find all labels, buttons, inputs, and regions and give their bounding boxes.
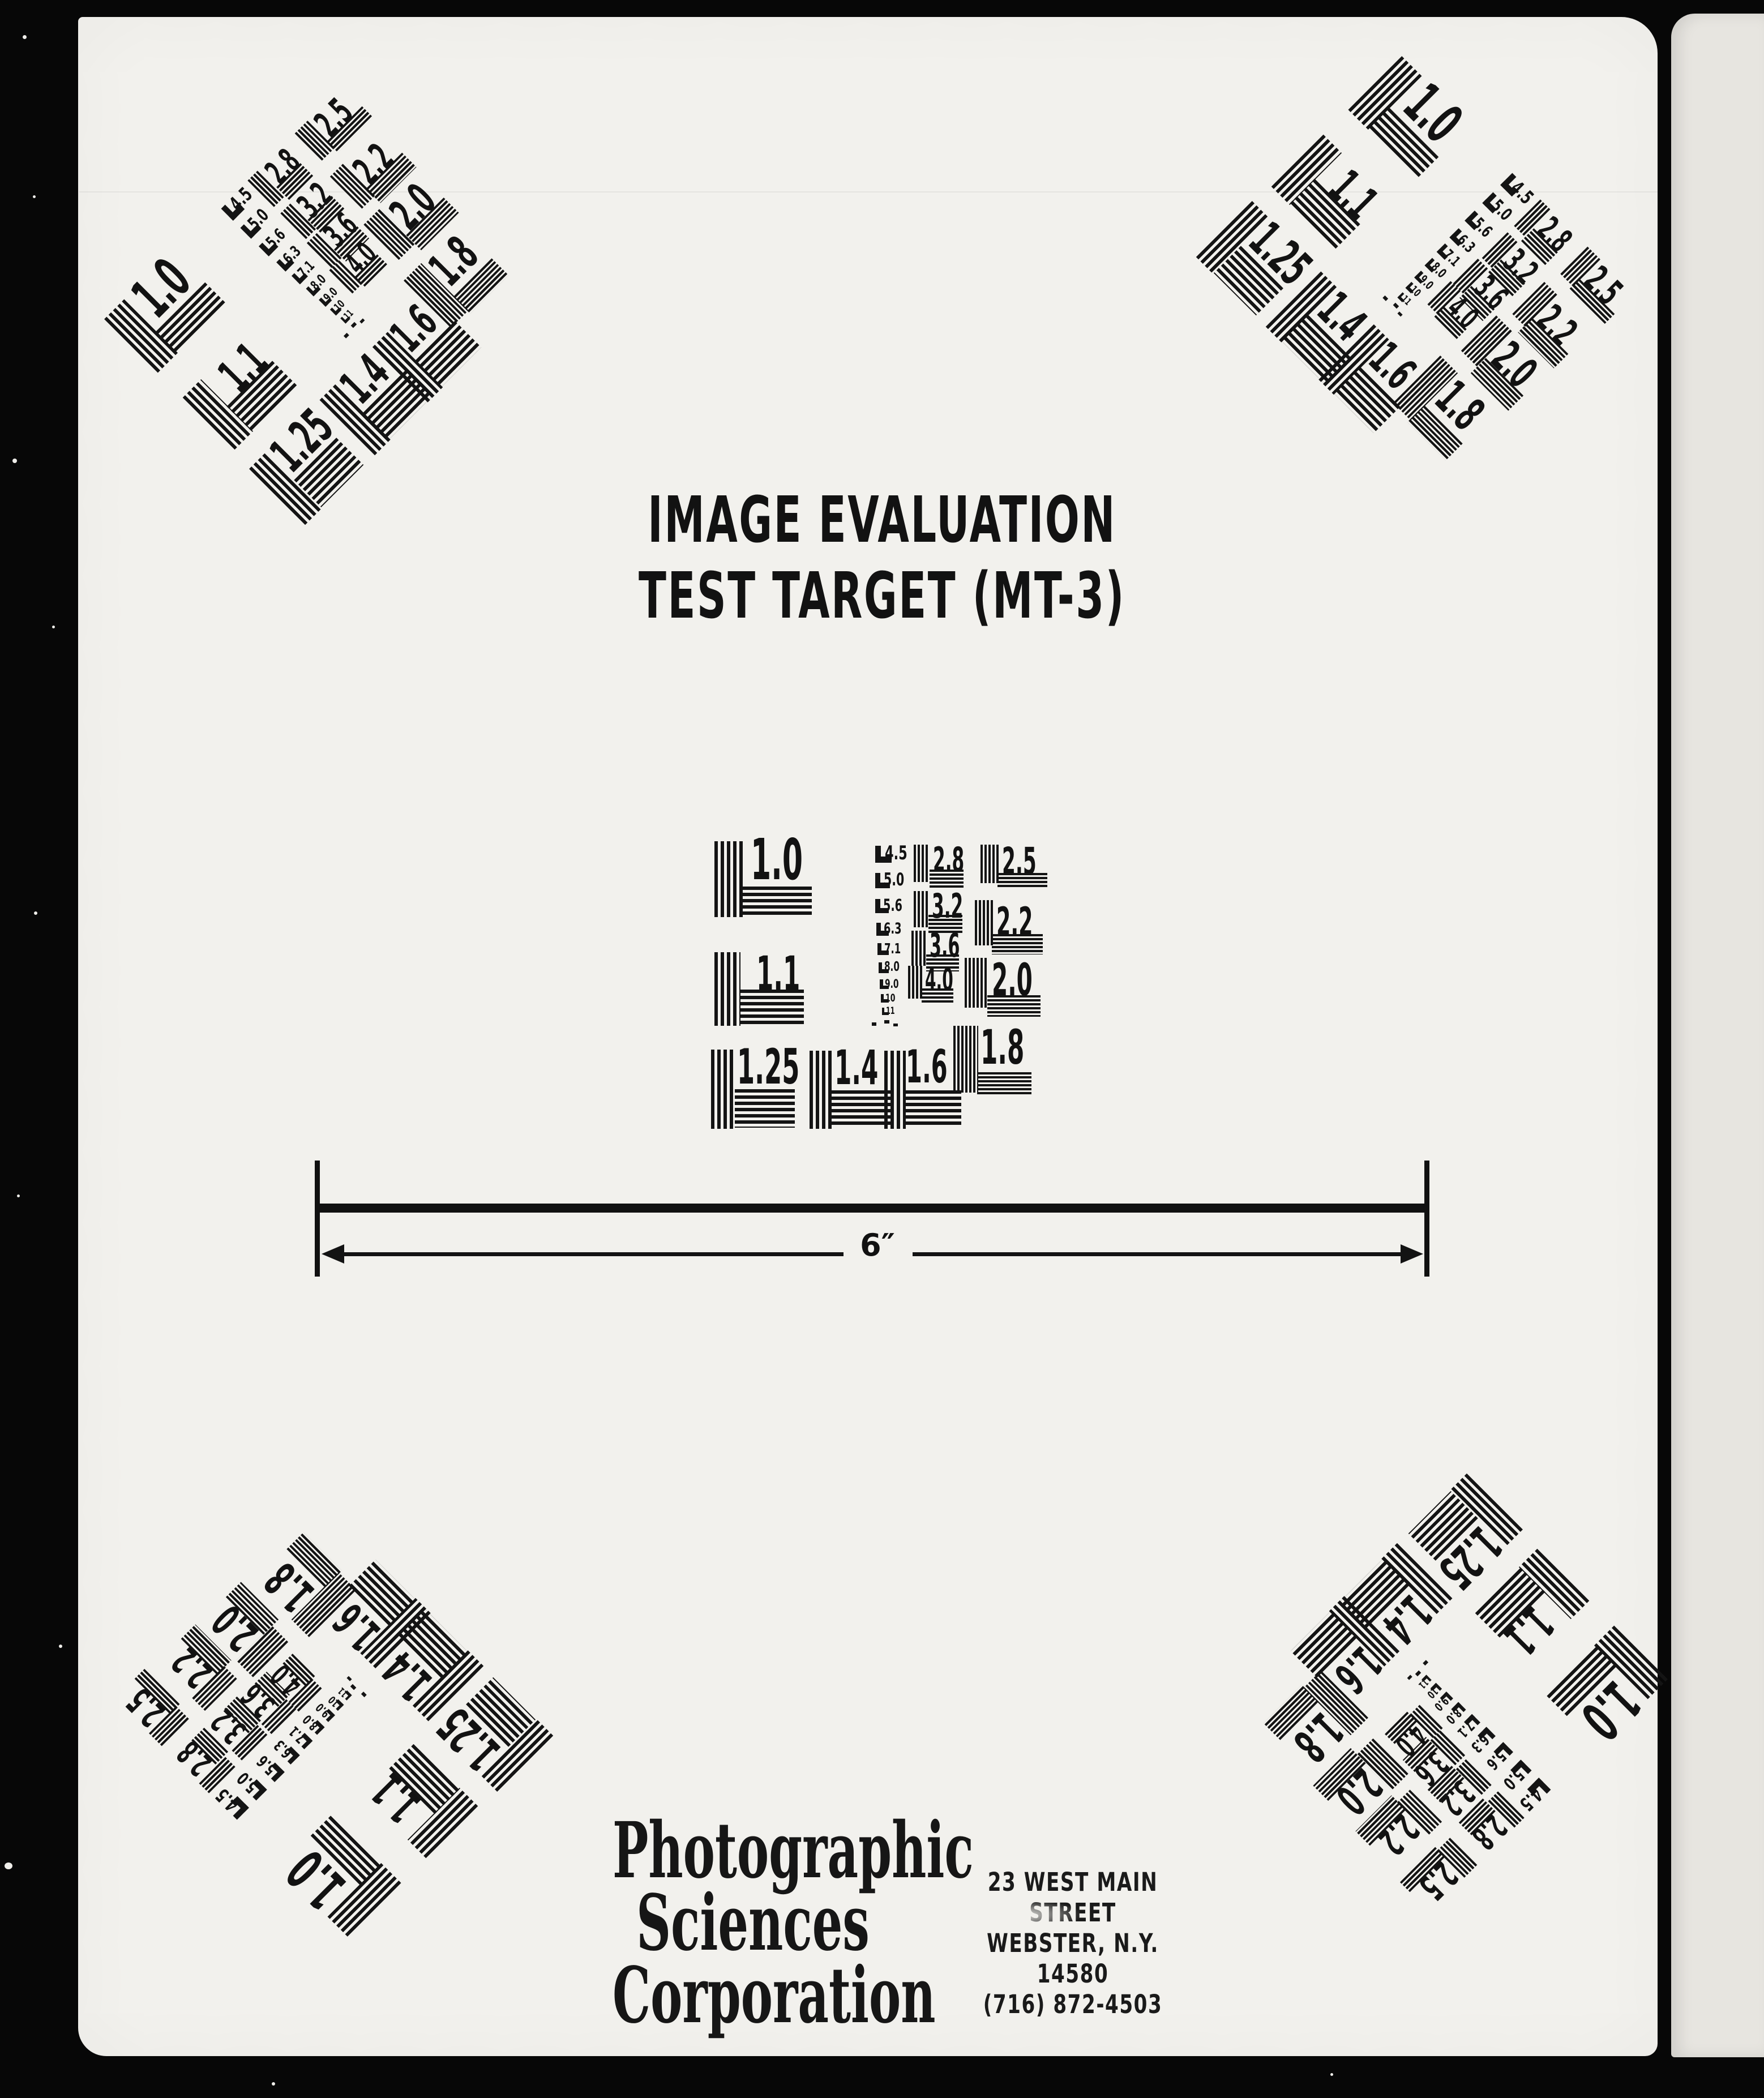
title-line-2: TEST TARGET (MT-3) xyxy=(318,558,1446,634)
company-line-1: Photographic xyxy=(613,1814,893,1887)
resolution-target-center: 1.01.11.251.41.62.83.23.64.02.52.22.01.8… xyxy=(702,821,1087,1144)
dust-speck xyxy=(5,1862,12,1869)
dust-speck xyxy=(23,35,27,39)
company-line-3: Corporation xyxy=(613,1959,893,2032)
target-small-cell-value: 11 xyxy=(886,1008,895,1015)
tiny-resolution-mark xyxy=(893,1024,898,1026)
scale-bar-right-tick xyxy=(1424,1161,1429,1277)
arrow-head-right-icon xyxy=(1401,1244,1423,1264)
dust-speck xyxy=(33,195,36,198)
dust-speck xyxy=(59,1645,62,1648)
scale-bar-label: 6″ xyxy=(849,1227,906,1263)
scan-smudge xyxy=(957,1900,1081,1929)
dust-speck xyxy=(12,459,17,463)
scale-bar-left-tick xyxy=(315,1161,320,1277)
dust-speck xyxy=(272,2082,275,2086)
tiny-resolution-mark xyxy=(872,1022,876,1026)
page-title: IMAGE EVALUATION TEST TARGET (MT-3) xyxy=(318,482,1446,634)
scale-arrow-line-right xyxy=(913,1252,1410,1256)
dust-speck xyxy=(17,1194,20,1197)
address-line-2: WEBSTER, N.Y. 14580 xyxy=(952,1928,1193,1989)
company-name: Photographic Sciences Corporation xyxy=(613,1814,893,2032)
adjacent-page-edge xyxy=(1671,14,1764,2057)
address-line-3: (716) 872-4503 xyxy=(952,1989,1193,2020)
tiny-resolution-mark xyxy=(884,1020,889,1024)
company-line-2: Sciences xyxy=(613,1887,893,1959)
company-address: 23 WEST MAIN STREET WEBSTER, N.Y. 14580 … xyxy=(952,1867,1193,2020)
scanned-test-target-page: IMAGE EVALUATION TEST TARGET (MT-3) 1.01… xyxy=(0,0,1764,2098)
dust-speck xyxy=(34,911,37,915)
target-small-cell: 11 xyxy=(702,821,1087,1144)
title-line-1: IMAGE EVALUATION xyxy=(318,482,1446,558)
dust-speck xyxy=(52,626,55,628)
scale-bar-rule xyxy=(318,1204,1427,1213)
target-small-cell-value: 11 xyxy=(1400,295,1411,306)
scale-arrow-line-left xyxy=(340,1252,844,1256)
arrow-head-left-icon xyxy=(322,1244,344,1264)
dust-speck xyxy=(1330,2073,1333,2076)
